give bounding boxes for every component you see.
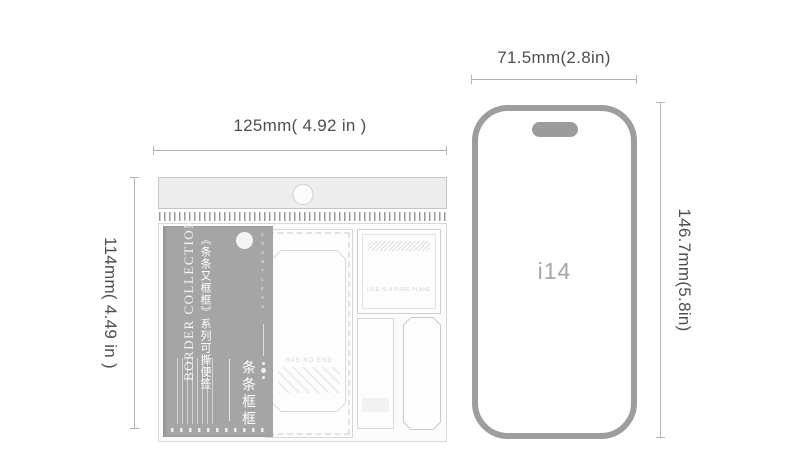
dimension-tick (656, 102, 665, 103)
phone-height-dimension-line (660, 102, 661, 438)
dimension-tick (130, 177, 139, 178)
package-width-dimension-line (153, 150, 447, 151)
product-label-card: BORDER COLLECTION 《条条又框框》系列可撕便签 COUNTLES… (163, 226, 273, 437)
fine-print-columns (177, 358, 213, 424)
large-pad-text: HAS NO END (266, 358, 352, 364)
product-name-cn: 条条框框 (237, 360, 257, 428)
dot (261, 368, 266, 373)
bottom-letter-row (171, 428, 265, 432)
phone-model-label: i14 (478, 258, 631, 285)
dynamic-island-pill (532, 122, 578, 137)
dimension-tick (656, 437, 665, 438)
bottom-left-note-band (362, 398, 389, 412)
bottom-right-note-pad (403, 317, 441, 430)
package-height-label: 114mm( 4.49 in ) (100, 237, 120, 369)
phone-outline: i14 (472, 105, 637, 439)
brand-badge (236, 232, 253, 249)
bottom-left-note-pad (357, 318, 394, 429)
large-note-pad: HAS NO END (265, 229, 353, 438)
dimension-tick (636, 75, 637, 84)
dot (262, 376, 265, 379)
side-dots (261, 362, 266, 379)
label-divider-line (229, 359, 230, 421)
top-right-note-pad: LIFE IS A PURE PLANE (357, 229, 441, 314)
top-right-note-hatch-band (368, 241, 430, 251)
bag-hanger-header (158, 177, 447, 209)
side-vertical-letters: COUNTLESS (260, 232, 265, 313)
dot (262, 362, 265, 365)
hang-hole (292, 184, 313, 205)
dimension-tick (130, 428, 139, 429)
phone-height-label: 146.7mm(5.8in) (674, 208, 694, 331)
dimension-tick (471, 75, 472, 84)
phone-width-dimension-line (471, 79, 637, 80)
phone-width-label: 71.5mm(2.8in) (471, 48, 637, 68)
top-right-note-text: LIFE IS A PURE PLANE (358, 287, 440, 293)
size-comparison-diagram: 125mm( 4.92 in ) 114mm( 4.49 in ) 71.5mm… (0, 0, 790, 465)
bag-body: HAS NO END LIFE IS A PURE PLANE BORDER C… (158, 223, 447, 442)
side-divider-line (263, 324, 264, 356)
dimension-tick (153, 146, 154, 155)
package-height-dimension-line (134, 177, 135, 429)
bag-perforation-strip (159, 212, 446, 221)
package-width-label: 125mm( 4.92 in ) (153, 116, 447, 136)
dimension-tick (446, 146, 447, 155)
large-pad-hatch-band (278, 367, 340, 393)
